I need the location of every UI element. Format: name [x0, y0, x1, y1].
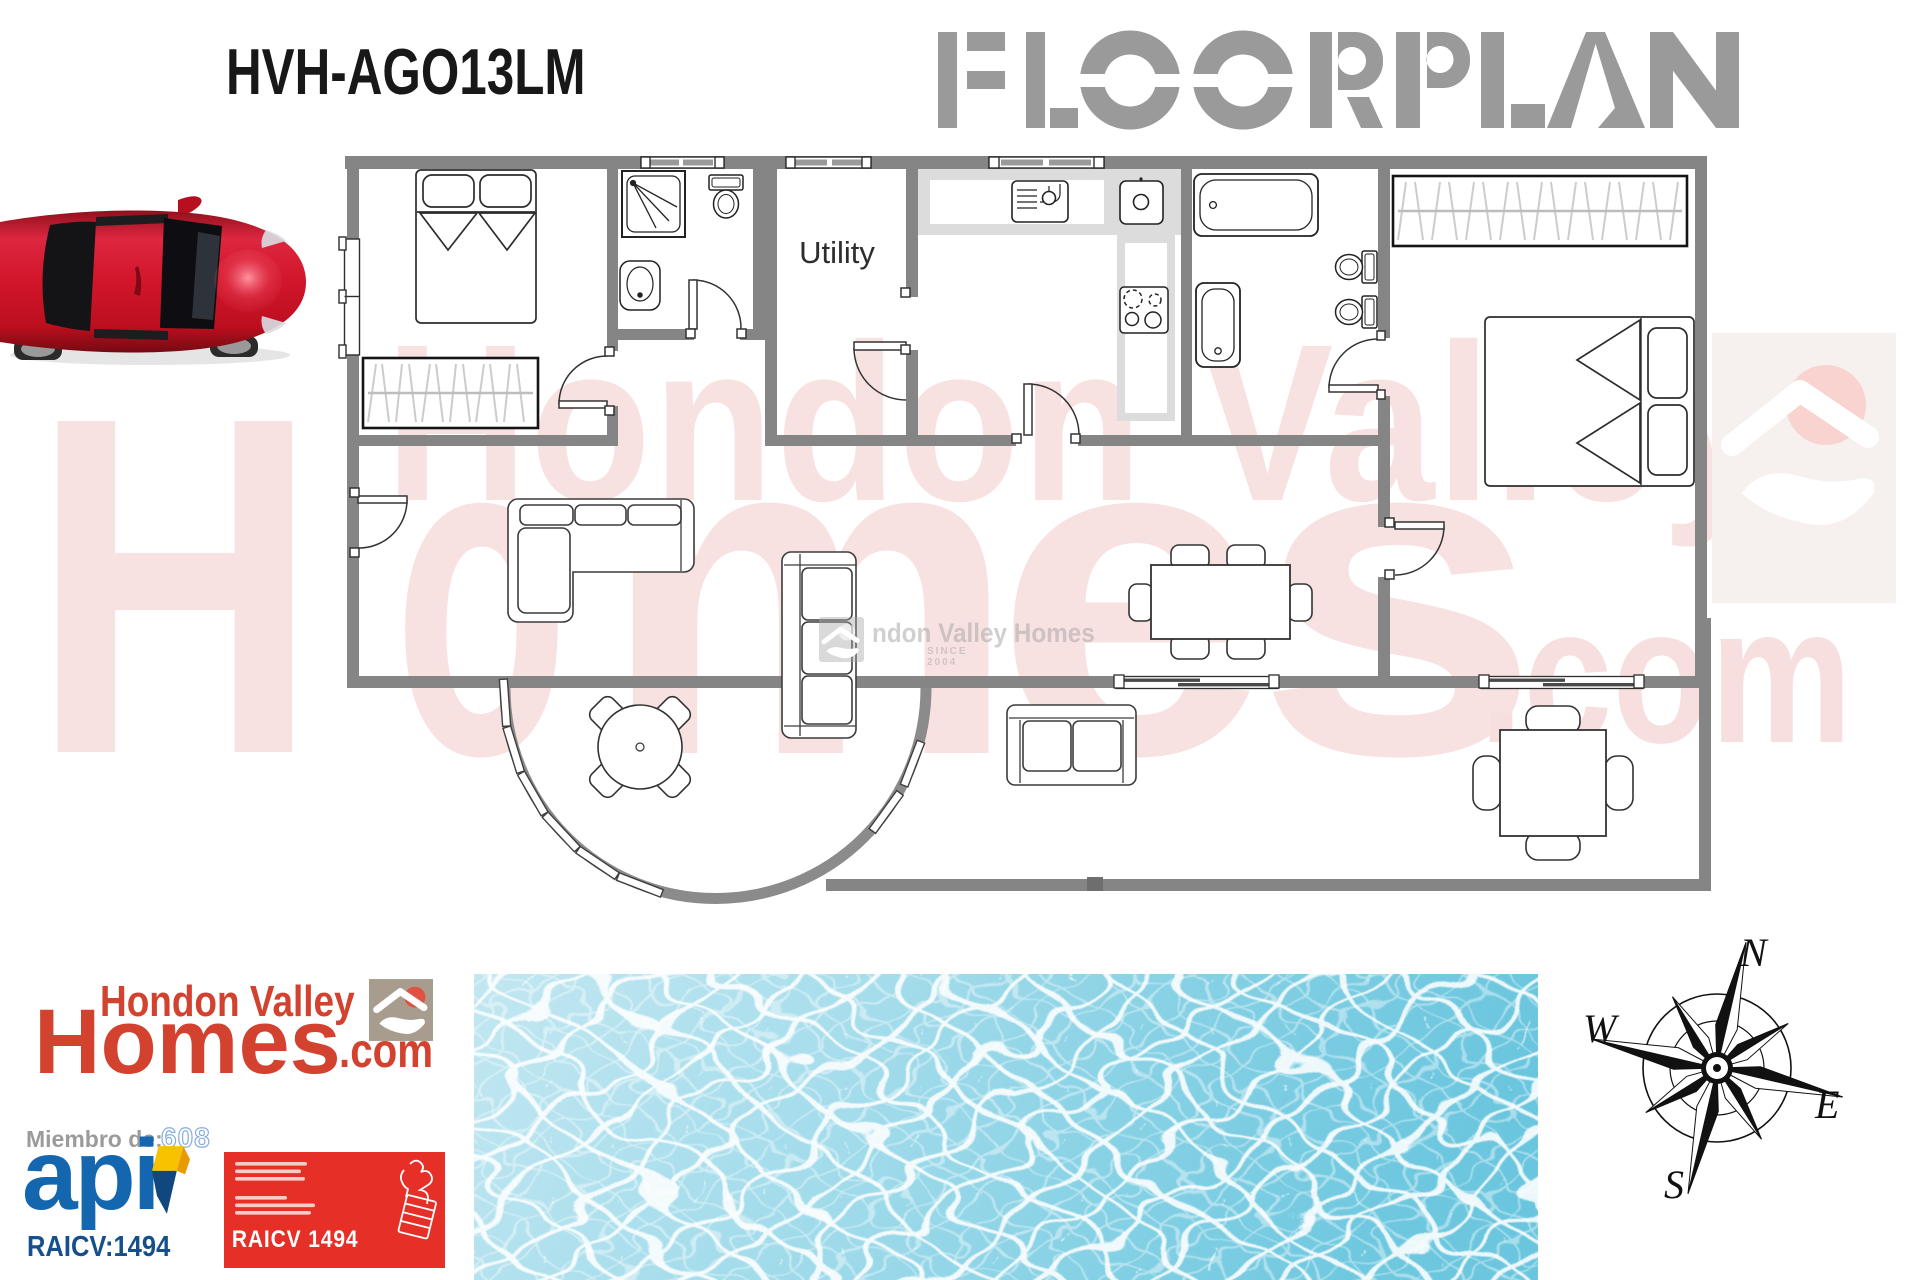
- svg-text:E: E: [1814, 1082, 1839, 1127]
- svg-text:N: N: [1739, 930, 1769, 975]
- svg-text:S: S: [1664, 1162, 1684, 1207]
- svg-text:W: W: [1583, 1006, 1620, 1051]
